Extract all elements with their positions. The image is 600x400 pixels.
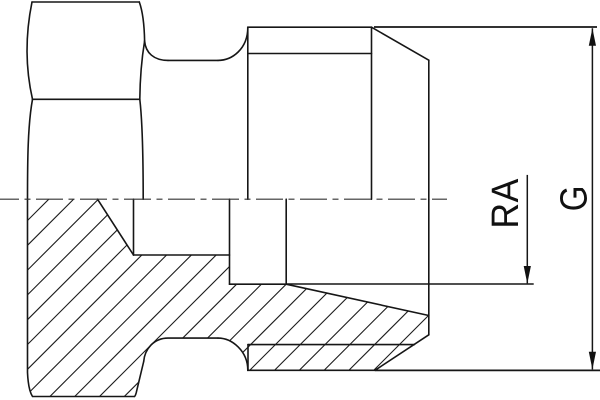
svg-text:RA: RA: [484, 178, 526, 228]
svg-text:G: G: [552, 185, 595, 211]
